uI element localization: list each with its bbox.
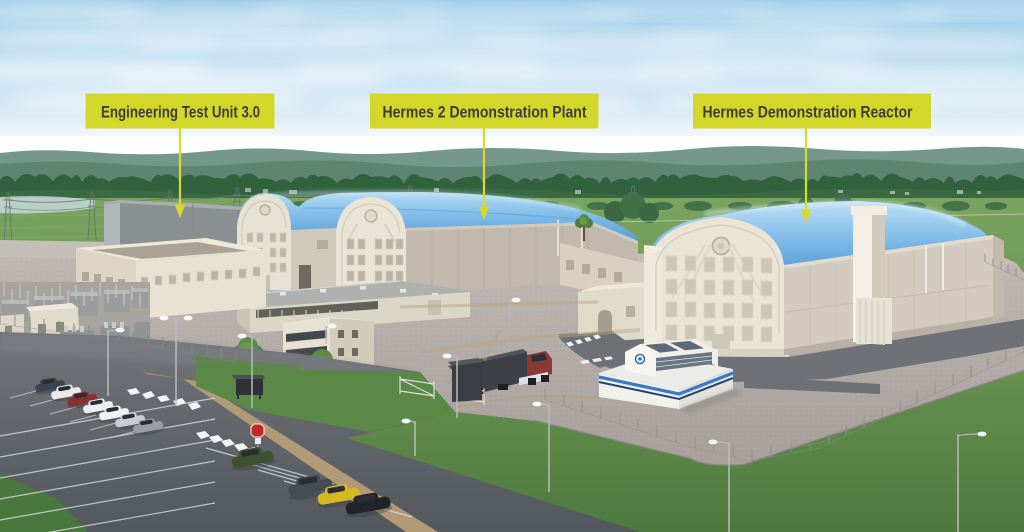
svg-text:Hermes 2 Demonstration Plant: Hermes 2 Demonstration Plant xyxy=(383,103,587,122)
svg-text:Engineering Test Unit 3.0: Engineering Test Unit 3.0 xyxy=(101,103,260,122)
svg-text:Hermes Demonstration Reactor: Hermes Demonstration Reactor xyxy=(703,103,913,122)
